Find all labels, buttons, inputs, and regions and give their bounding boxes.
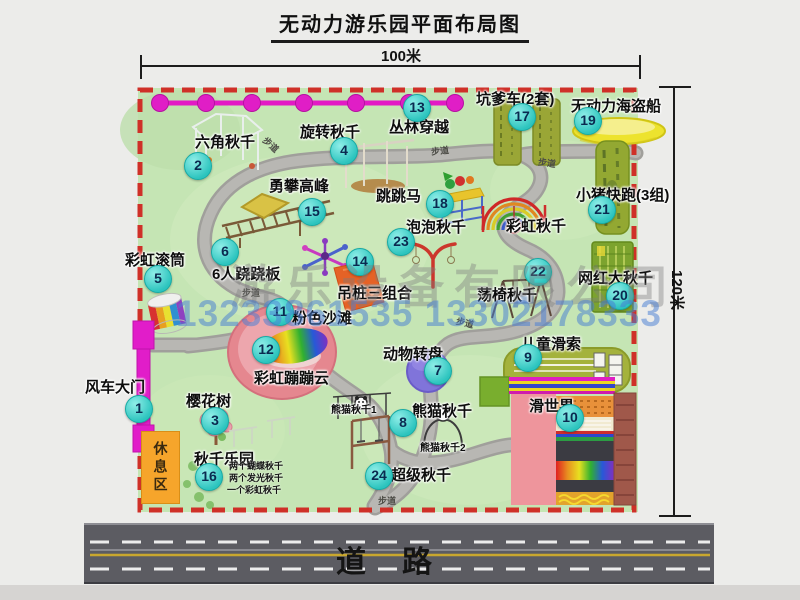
road-label: 道路 (336, 537, 468, 581)
page-title-text: 无动力游乐园平面布局图 (271, 8, 529, 43)
rest-area-box: 休息区 (141, 431, 180, 504)
park-layout-page: 无动力游乐园平面布局图 100米 120米 休息区 风车大门1六角秋千2樱花树3… (0, 0, 800, 600)
page-title: 无动力游乐园平面布局图 (0, 8, 800, 43)
watermark-phone: 13233861535 13302178333 (176, 293, 662, 335)
rest-area-label: 休息区 (151, 441, 171, 495)
dimension-width-label: 100米 (381, 45, 421, 66)
piggy-run-icon (596, 141, 629, 234)
animal-turntable-icon (407, 350, 449, 392)
below-road-strip (0, 585, 800, 600)
